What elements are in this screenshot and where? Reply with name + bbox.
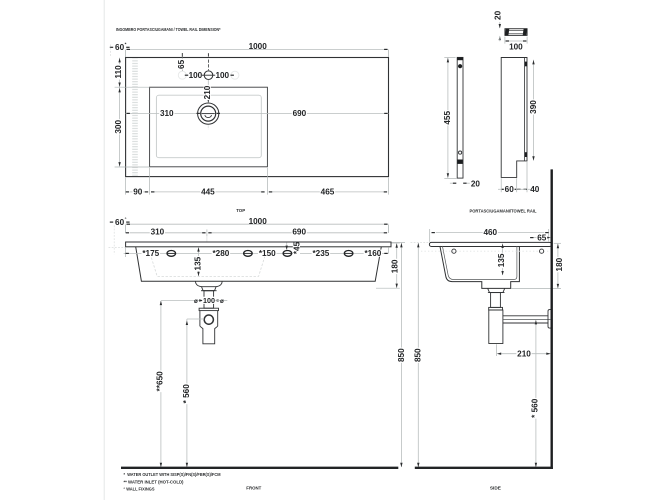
svg-text:*175: *175 (142, 249, 159, 258)
svg-text:100: 100 (189, 71, 203, 80)
svg-text:850: 850 (414, 348, 423, 362)
svg-text:° WALL FIXINGS: ° WALL FIXINGS (124, 487, 155, 492)
svg-text:90: 90 (133, 188, 143, 197)
svg-text:100: 100 (203, 296, 215, 305)
svg-text:PORTASCIUGAMANI/TOWEL RAIL: PORTASCIUGAMANI/TOWEL RAIL (470, 208, 537, 213)
svg-text:60: 60 (115, 43, 125, 52)
svg-text:65: 65 (537, 233, 547, 242)
svg-text:135: 135 (194, 256, 203, 270)
svg-text:210: 210 (203, 85, 212, 99)
svg-text:ø: ø (220, 298, 224, 305)
svg-text:*280: *280 (212, 249, 229, 258)
svg-text:300: 300 (114, 120, 123, 134)
svg-text:20: 20 (493, 10, 502, 20)
svg-text:390: 390 (529, 100, 538, 114)
svg-text:* 560: * 560 (182, 384, 191, 404)
svg-text:60: 60 (115, 218, 125, 227)
svg-text:INGOMBRO PORTASCIUGAMANI / TOW: INGOMBRO PORTASCIUGAMANI / TOWEL RAIL DI… (116, 27, 221, 32)
svg-text:** WATER INLET (HOT-COLD): ** WATER INLET (HOT-COLD) (124, 479, 184, 484)
svg-text:1000: 1000 (249, 217, 268, 226)
svg-text:*235: *235 (312, 249, 329, 258)
svg-text:110: 110 (114, 65, 123, 79)
svg-text:ø: ø (194, 298, 198, 305)
svg-text:°: ° (125, 216, 127, 221)
svg-text:FRONT: FRONT (246, 485, 261, 490)
svg-text:1000: 1000 (249, 42, 268, 51)
svg-text:20: 20 (471, 179, 481, 188)
svg-text:850: 850 (397, 348, 406, 362)
svg-text:135: 135 (497, 253, 506, 267)
svg-text:60: 60 (505, 185, 515, 194)
svg-text:40: 40 (530, 185, 540, 194)
svg-text:690: 690 (292, 227, 306, 236)
svg-text:310: 310 (151, 227, 165, 236)
svg-text:465: 465 (321, 188, 335, 197)
svg-text:180: 180 (555, 257, 564, 271)
svg-text:100: 100 (215, 71, 229, 80)
svg-text:455: 455 (443, 111, 452, 125)
svg-text:*150: *150 (259, 249, 276, 258)
svg-text:310: 310 (160, 109, 174, 118)
svg-text:445: 445 (201, 188, 215, 197)
svg-text:*: * (125, 42, 127, 47)
svg-text:**650: **650 (156, 371, 165, 391)
svg-text:460: 460 (483, 228, 497, 237)
svg-text:*45: *45 (292, 241, 301, 254)
svg-text:100: 100 (509, 42, 523, 51)
svg-text:210: 210 (517, 350, 531, 359)
svg-text:TOP: TOP (236, 208, 245, 213)
svg-text:180: 180 (391, 259, 400, 273)
svg-text:* 560: * 560 (531, 398, 540, 418)
svg-text:65: 65 (177, 59, 186, 69)
svg-text:*160: *160 (364, 249, 381, 258)
svg-text:SIDE: SIDE (490, 485, 501, 490)
svg-text:690: 690 (293, 109, 307, 118)
svg-text:* WATER OUTLET WITH SISP(S)/F: * WATER OUTLET WITH SISP(S)/FN(S)/FBR(S)… (124, 472, 221, 477)
